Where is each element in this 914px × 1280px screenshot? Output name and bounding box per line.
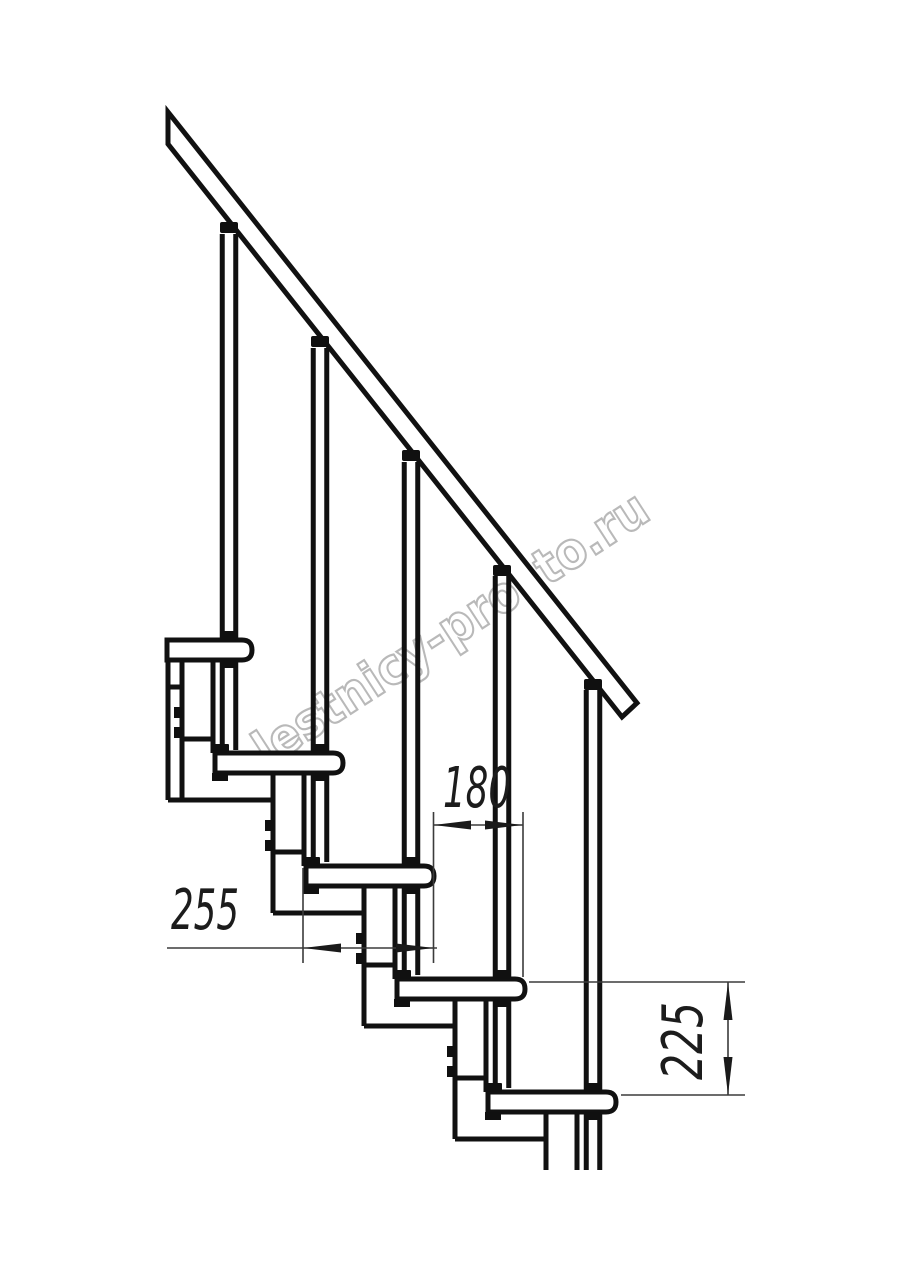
baluster-cap [302,857,320,866]
baluster [404,462,418,975]
balusters [222,234,600,1170]
bolt [221,660,237,668]
arrowhead-right-icon [485,821,523,830]
tread [488,1092,616,1112]
technical-drawing-page: lestnicy-prosto.ru [0,0,914,1280]
baluster-cap [484,1083,502,1092]
support-module [546,1112,577,1170]
baluster [222,234,236,750]
bolt [303,886,319,894]
baluster-cap [220,631,238,640]
dimension-label-180: 180 [443,756,511,821]
dimension-label-225: 225 [651,1002,716,1080]
baluster-cap [311,336,329,347]
arrowhead-left-icon [434,821,472,830]
bolt [447,1046,455,1057]
watermark-text: lestnicy-prosto.ru [242,479,659,778]
baluster-cap [493,970,511,979]
dimension-step-rise: 225 [529,982,745,1095]
arrowhead-down-icon [724,1057,733,1095]
baluster-cap [393,970,411,979]
tread [215,753,343,773]
baluster-cap [311,744,329,753]
bolt [447,1066,455,1077]
bolt [356,933,364,944]
baluster-cap [402,450,420,461]
bolt [265,840,273,851]
arrowhead-up-icon [724,982,733,1020]
bolt [312,773,328,781]
bolt [394,999,410,1007]
staircase-diagram: lestnicy-prosto.ru [0,0,914,1280]
bolt [585,1112,601,1120]
baluster [495,576,509,1088]
bolt [212,773,228,781]
bolt [174,707,182,718]
dimension-label-255: 255 [171,878,239,943]
bolt [174,727,182,738]
bolt [403,886,419,894]
tread [306,866,434,886]
tread [397,979,525,999]
baluster-cap [220,222,238,233]
tread [167,640,252,660]
baluster [313,348,327,862]
baluster-cap [584,679,602,690]
bolt [265,820,273,831]
baluster-cap [493,565,511,576]
baluster-cap [402,857,420,866]
arrowhead-left-icon [303,944,341,953]
baluster-cap [211,744,229,753]
bolt [494,999,510,1007]
arrowhead-right-icon [396,944,434,953]
watermark: lestnicy-prosto.ru [242,479,659,778]
bolt [485,1112,501,1120]
baluster-cap [584,1083,602,1092]
bolt [356,953,364,964]
